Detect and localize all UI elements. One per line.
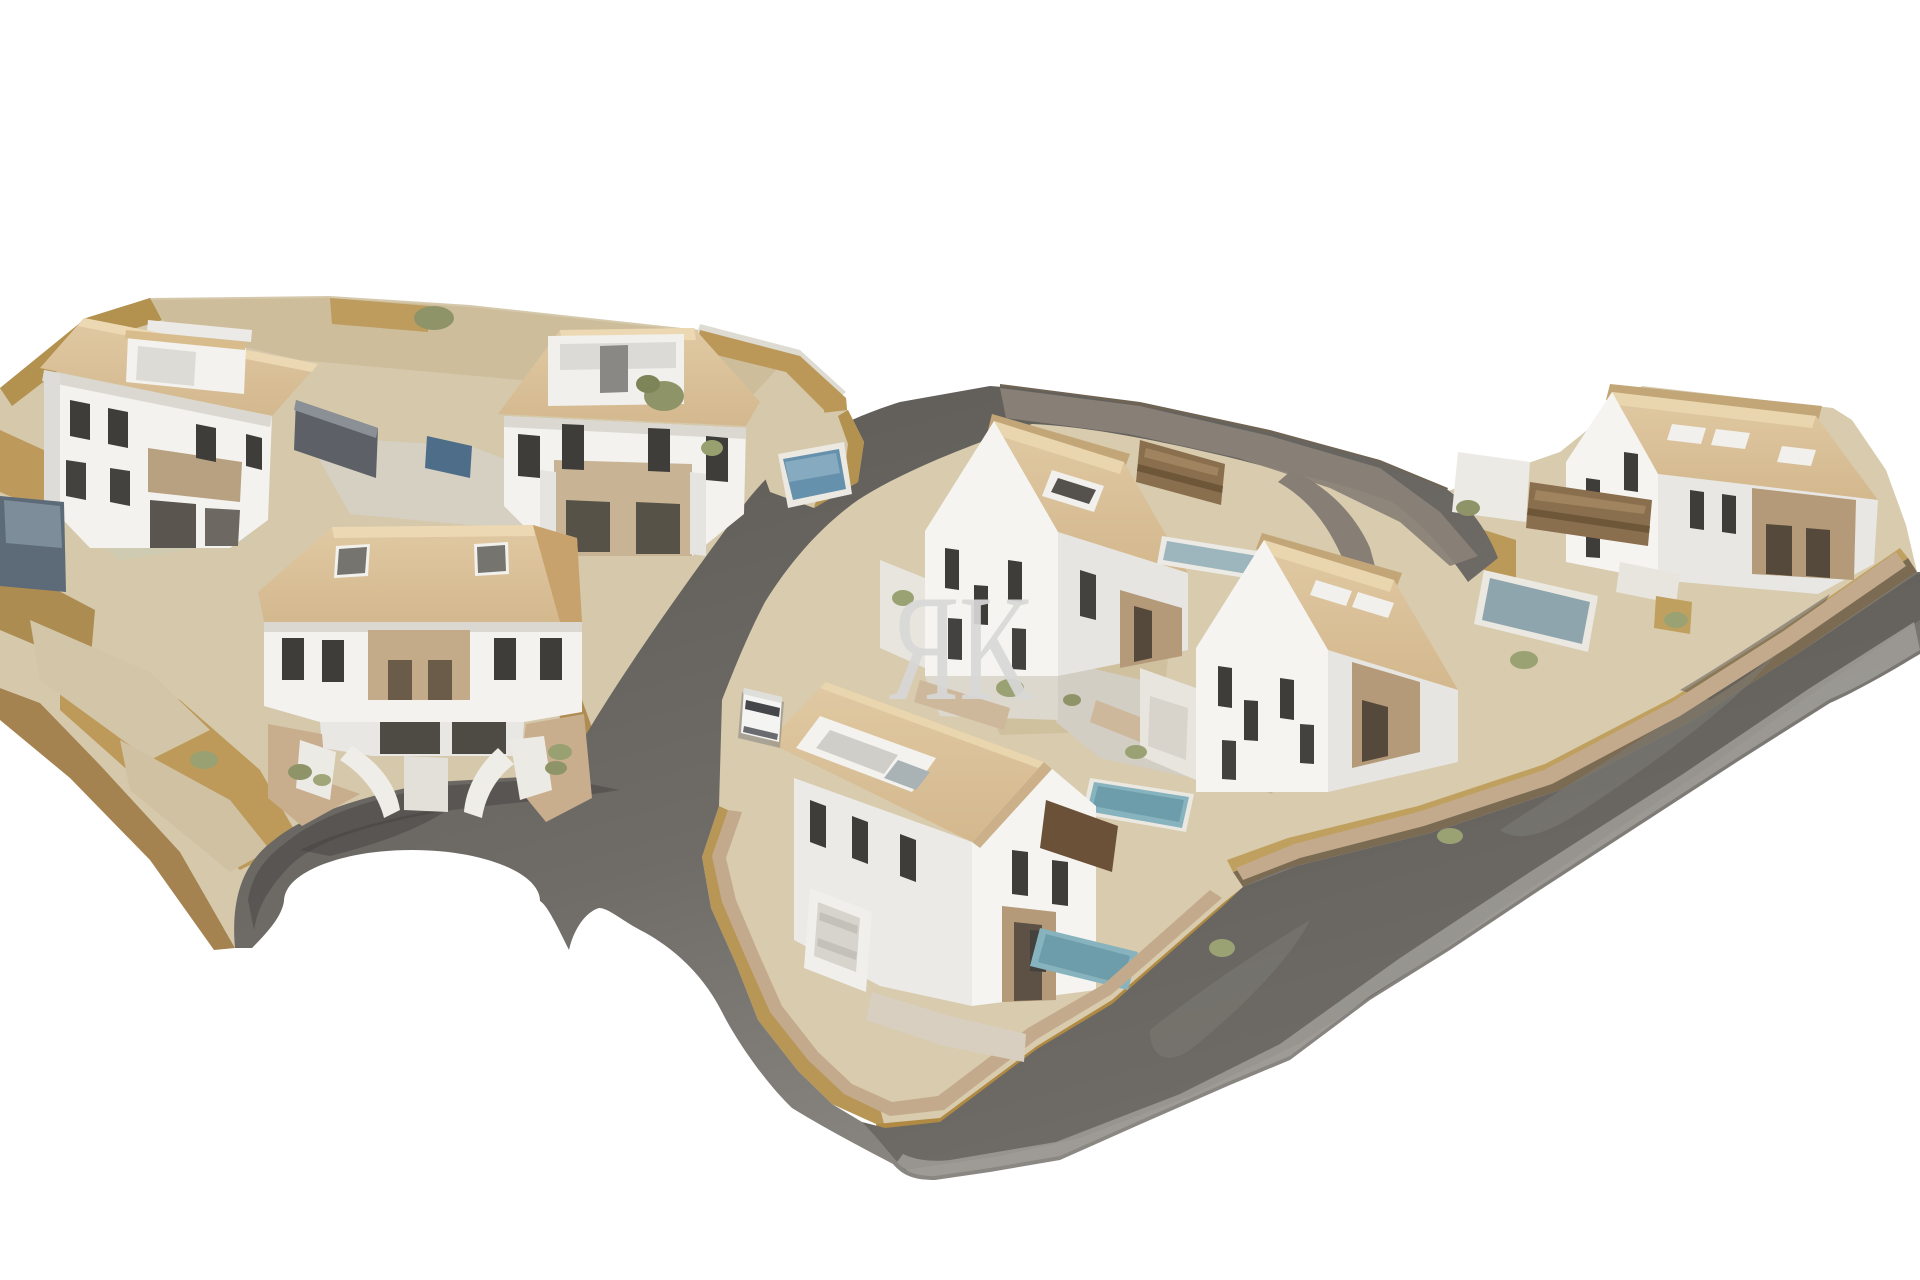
- svg-text:ЯK: ЯK: [889, 564, 1035, 732]
